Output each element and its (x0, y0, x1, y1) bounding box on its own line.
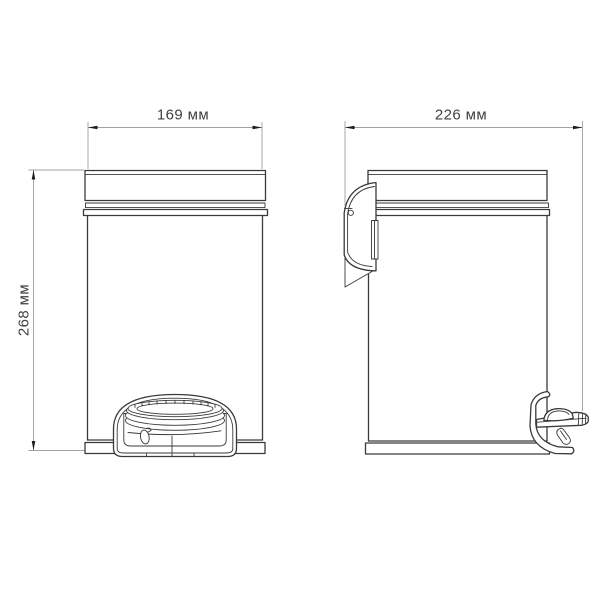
dimension-label-side-depth: 226 мм (435, 107, 487, 124)
pedal-roller (557, 428, 571, 444)
front-view (84, 171, 268, 457)
dimension-label-height: 268 мм (16, 284, 33, 336)
side-body (369, 216, 548, 442)
front-pedal-pad (126, 400, 225, 430)
side-base (366, 441, 550, 454)
hinge-pivot-hole (348, 210, 353, 215)
dimension-front-width (88, 122, 262, 169)
dimension-height (29, 170, 85, 451)
side-lid (368, 171, 550, 216)
dimension-label-front-width: 169 мм (157, 107, 209, 124)
front-pedal (114, 395, 237, 457)
technical-drawing (0, 0, 600, 600)
lid-hinge-bracket (344, 183, 378, 288)
side-view (344, 171, 588, 455)
side-pedal-mechanism (530, 392, 588, 454)
drawing-canvas: 169 мм 226 мм 268 мм (0, 0, 600, 600)
front-lid (84, 171, 268, 216)
